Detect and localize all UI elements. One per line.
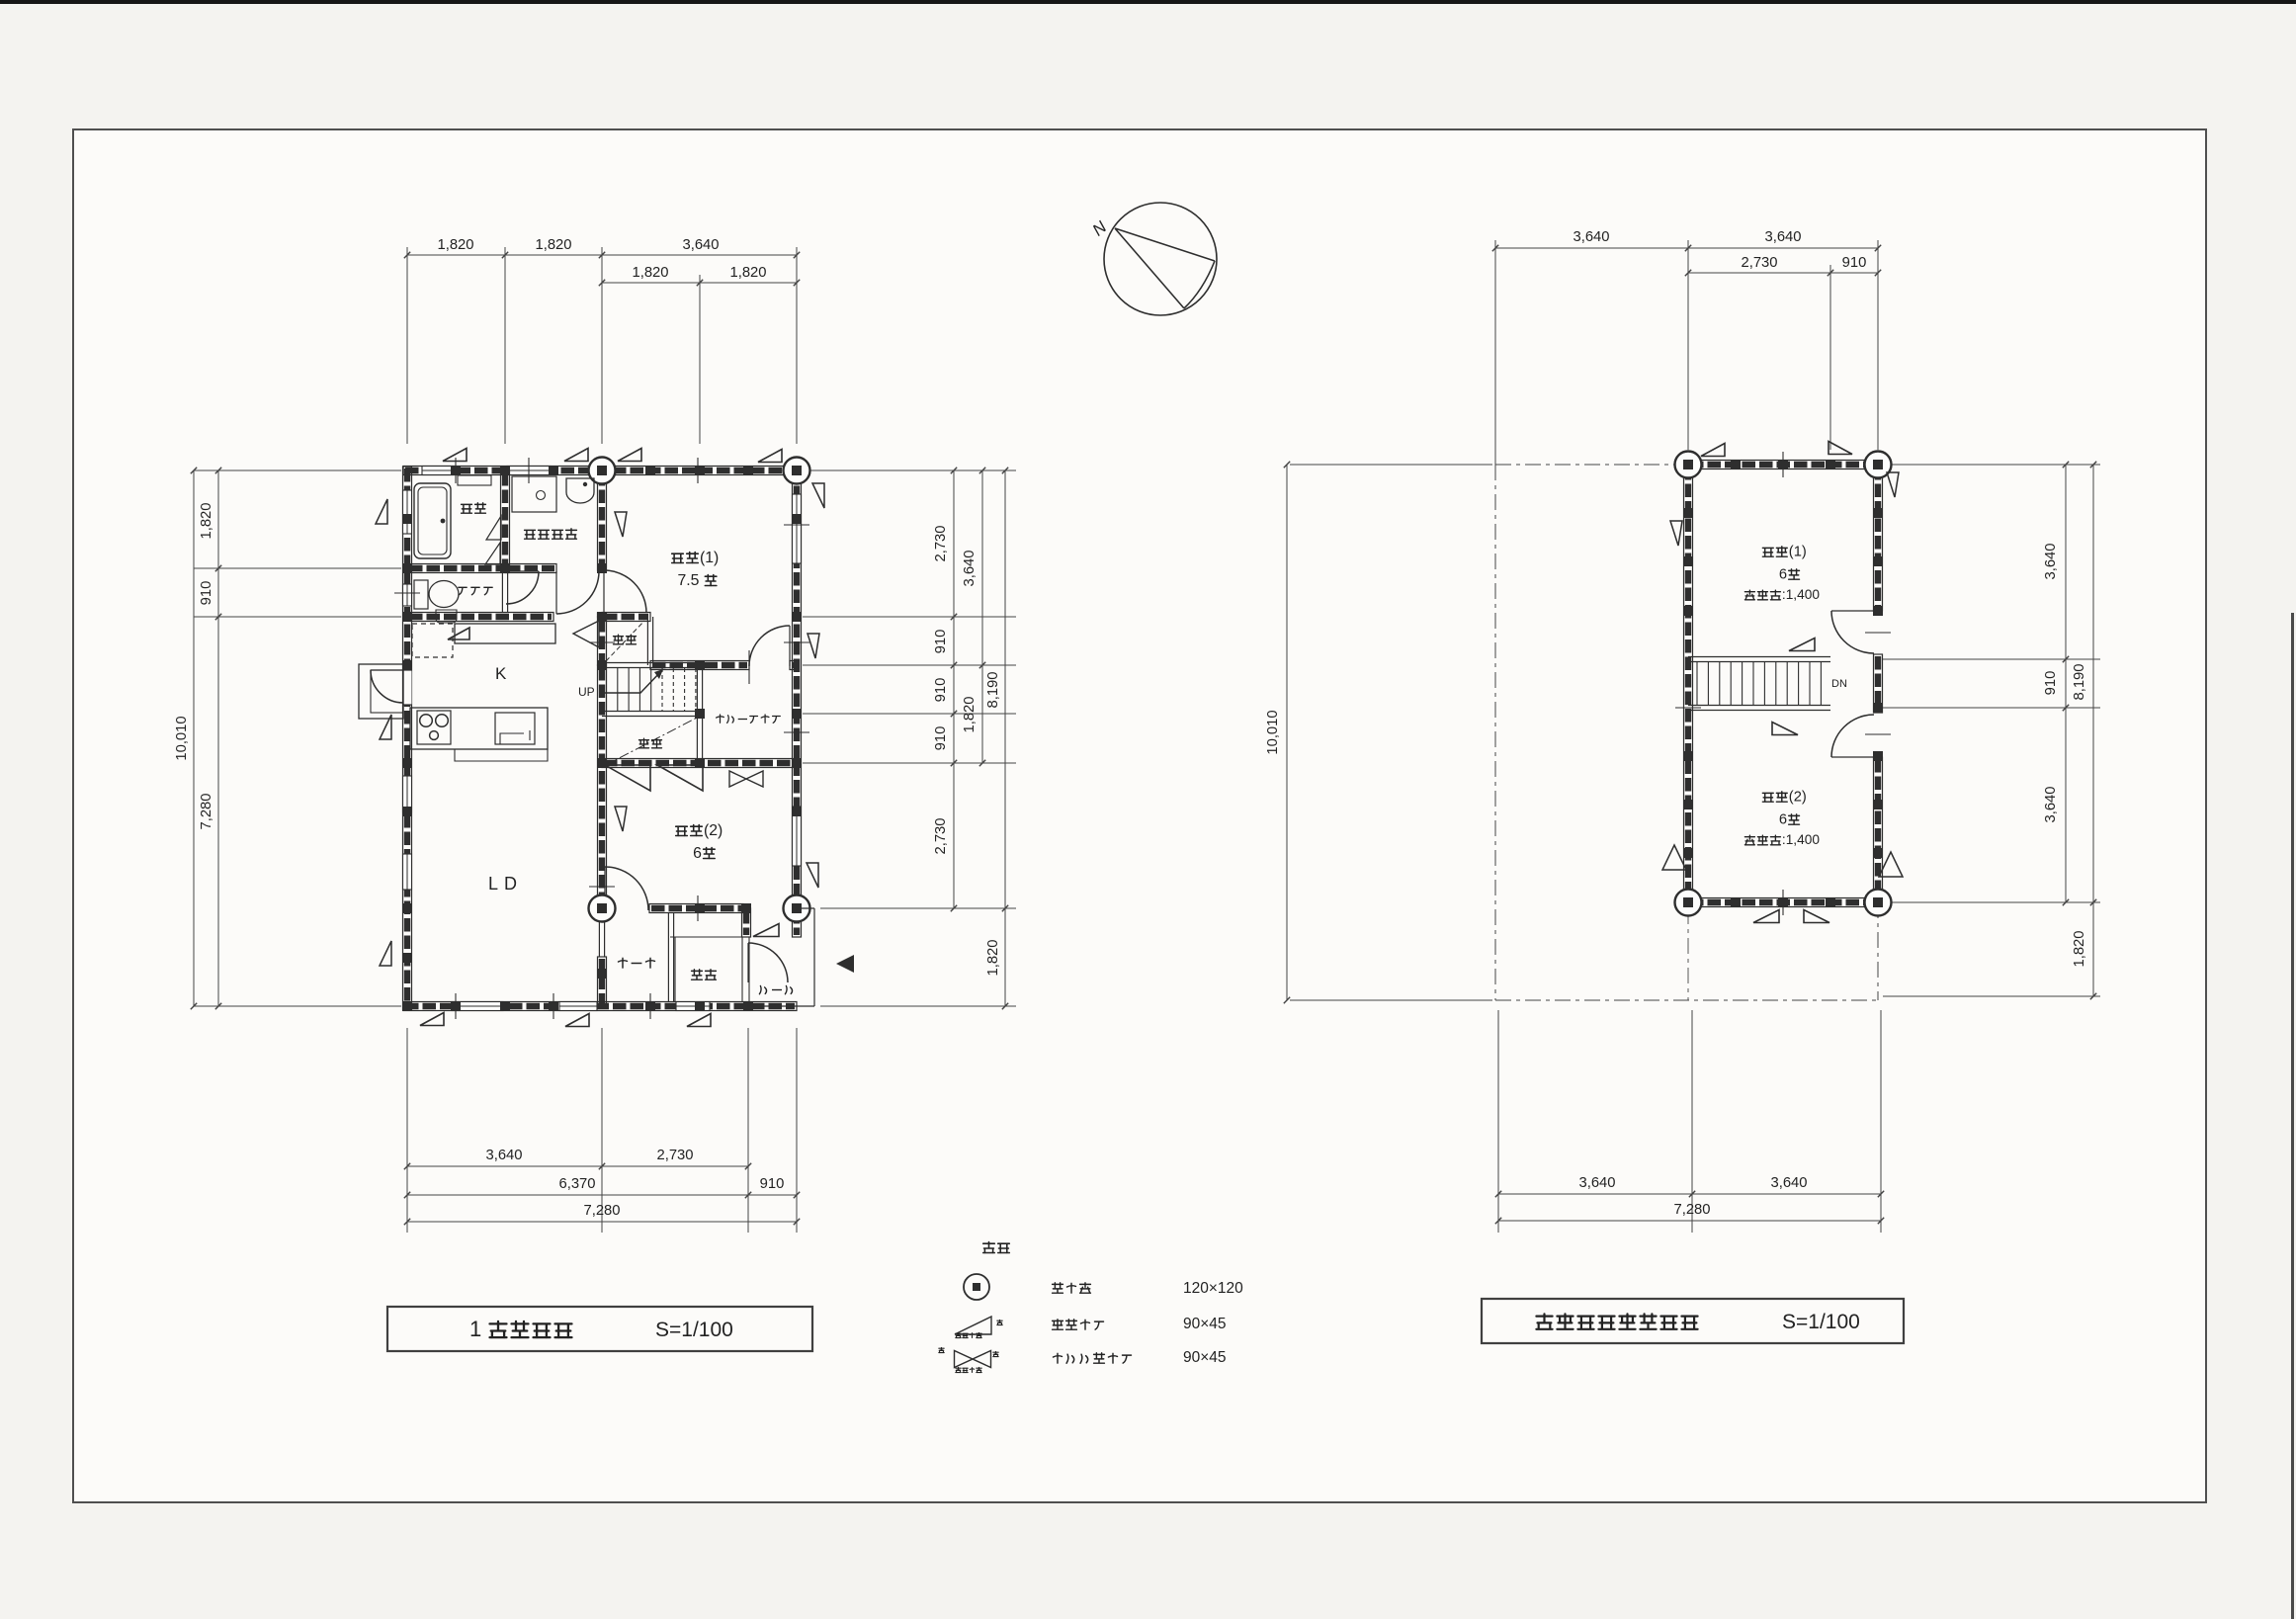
svg-text:1,820: 1,820 [729,265,766,281]
svg-text:(2): (2) [1789,790,1807,806]
svg-text:2,730: 2,730 [933,525,949,561]
svg-text:10,010: 10,010 [1265,710,1281,754]
svg-text:10,010: 10,010 [174,716,190,760]
svg-text:910: 910 [2043,671,2059,696]
svg-text:2,730: 2,730 [656,1148,693,1163]
svg-text:7.5: 7.5 [678,572,700,589]
svg-text:1: 1 [469,1317,481,1341]
svg-text:910: 910 [199,581,214,606]
svg-text:90×45: 90×45 [1183,1349,1227,1366]
svg-text:6: 6 [1779,567,1787,583]
svg-text:1,820: 1,820 [985,939,1001,976]
svg-text:3,640: 3,640 [962,550,978,586]
svg-text:2,730: 2,730 [1741,255,1777,271]
svg-text:S=1/100: S=1/100 [655,1319,733,1341]
svg-text:7,280: 7,280 [199,793,214,829]
svg-text:1,820: 1,820 [437,237,473,253]
svg-text:3,640: 3,640 [682,237,719,253]
svg-text:3,640: 3,640 [1764,229,1801,245]
svg-text:3,640: 3,640 [2043,543,2059,579]
svg-text:1,820: 1,820 [535,237,571,253]
svg-text:7,280: 7,280 [1673,1202,1710,1218]
svg-text:910: 910 [933,678,949,703]
svg-text:7,280: 7,280 [583,1203,620,1219]
svg-text::1,400: :1,400 [1782,832,1820,847]
svg-text:120×120: 120×120 [1183,1280,1243,1297]
svg-text:UP: UP [578,685,595,699]
svg-text:3,640: 3,640 [1770,1175,1807,1191]
svg-text:6: 6 [693,845,702,862]
svg-text:90×45: 90×45 [1183,1316,1227,1332]
svg-text:3,640: 3,640 [485,1148,522,1163]
svg-text:1,820: 1,820 [632,265,668,281]
svg-text:2,730: 2,730 [933,817,949,854]
svg-text:8,190: 8,190 [985,671,1001,708]
svg-text:K: K [495,664,507,683]
svg-text:910: 910 [760,1176,785,1192]
svg-text:1,820: 1,820 [199,502,214,539]
svg-text:6: 6 [1779,812,1787,828]
svg-text:LD: LD [488,874,523,894]
svg-text:S=1/100: S=1/100 [1782,1311,1860,1333]
svg-text:3,640: 3,640 [1573,229,1609,245]
svg-text:8,190: 8,190 [2072,663,2087,700]
svg-text:6,370: 6,370 [558,1176,595,1192]
svg-text:3,640: 3,640 [2043,786,2059,822]
svg-text:(2): (2) [704,822,723,839]
svg-text:910: 910 [1842,255,1867,271]
svg-text::1,400: :1,400 [1782,587,1820,602]
svg-text:910: 910 [933,726,949,751]
svg-text:(1): (1) [1789,545,1807,560]
svg-text:1,820: 1,820 [2072,930,2087,967]
svg-text:(1): (1) [700,550,719,566]
svg-text:1,820: 1,820 [962,696,978,732]
svg-text:DN: DN [1831,678,1847,690]
svg-text:910: 910 [933,630,949,654]
svg-text:3,640: 3,640 [1578,1175,1615,1191]
